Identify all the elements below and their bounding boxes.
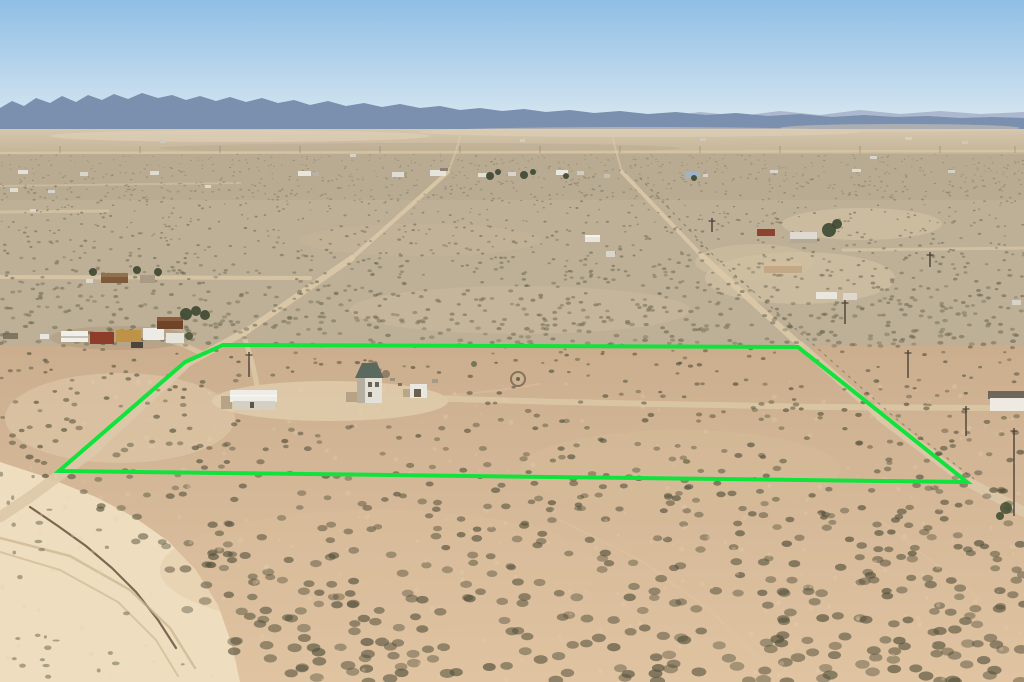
bush [473,526,482,531]
bush [981,180,984,182]
bush [882,247,886,249]
bush [77,213,80,215]
bush [151,292,156,295]
bush [422,212,425,214]
bush [557,162,559,163]
bush [516,163,518,164]
sand-speckle [827,604,831,608]
sand-speckle [1012,552,1015,555]
bush [663,271,667,274]
bush [178,170,180,171]
bush [984,634,997,642]
bush [642,338,648,342]
bush [138,200,140,202]
bush [747,442,755,447]
bush [430,165,432,166]
bush [221,177,224,179]
bush [606,170,608,171]
bush [882,161,884,162]
bush [696,281,700,283]
bush [776,274,781,277]
bush [271,199,274,201]
bush [471,223,474,225]
tree [200,310,210,320]
bush [32,180,34,181]
bush [823,171,825,172]
bush [716,205,719,207]
sand-speckle [502,397,506,401]
sand-patch [300,224,540,256]
bush [291,371,295,373]
bush [817,175,819,176]
bush [101,295,105,297]
bush [597,276,600,278]
bush [231,159,233,160]
sand-speckle [277,550,279,552]
far-house [870,156,877,159]
sand-speckle [446,518,448,520]
bush [512,182,515,184]
sand-speckle [294,431,299,436]
bush [273,166,275,167]
bush [303,580,314,587]
bush [59,172,61,173]
bush [822,258,825,260]
bush [538,177,540,178]
bush [397,160,399,161]
bush [126,475,133,479]
bush [665,188,667,189]
bush [614,334,620,338]
bush [948,625,961,633]
bush [1018,193,1021,195]
trailer-red [757,229,775,236]
bush [732,268,736,270]
bush [92,183,94,184]
bush [908,156,909,157]
bush [385,201,387,202]
sand-speckle [1004,625,1009,630]
bush [809,598,821,605]
bush [585,537,595,543]
bush [617,269,620,271]
bush [966,195,969,197]
bush [858,251,861,253]
bush [900,338,905,341]
far-house [392,172,404,177]
bush [902,616,913,623]
bush [257,190,259,191]
bush [23,325,28,328]
bush [673,180,676,182]
bush [436,194,438,195]
sand-speckle [618,617,621,620]
bush [246,162,248,163]
bush [169,293,174,296]
bush [23,186,26,188]
bush [385,252,388,254]
bush [228,551,237,557]
bush [551,282,556,285]
bush [293,351,298,354]
bush [967,323,972,326]
bush [468,375,474,378]
bush [775,221,778,223]
sand-speckle [502,385,504,387]
bush [688,364,693,367]
bush [561,669,574,677]
bush [10,291,15,294]
bush [165,566,176,573]
far-house [478,173,487,177]
bush [423,317,428,320]
bush [244,613,256,620]
bush [402,590,414,597]
sand-speckle [353,424,357,428]
sand-speckle [79,626,84,631]
bush [407,190,409,192]
bush [840,162,842,163]
bush [669,599,682,607]
bush [25,227,28,229]
bush [733,206,735,207]
bush [337,332,342,335]
bush [411,170,413,172]
bush [923,403,928,406]
bush [297,490,306,496]
bush [236,374,242,377]
sand-speckle [808,434,811,437]
bush [185,252,189,254]
bush [183,343,189,347]
bush [58,306,63,309]
bush [281,439,288,443]
bush [606,221,609,223]
bush [822,525,832,531]
bush [874,530,884,536]
bush [375,317,380,320]
bush [301,156,303,157]
far-house [577,171,584,175]
bush [883,297,887,300]
bush [327,181,329,182]
bush [751,406,756,409]
bush [376,176,378,177]
bush [998,306,1002,309]
bush [40,211,42,213]
bush [159,165,161,166]
bush [170,198,173,200]
bush [886,302,890,304]
bush [462,167,464,168]
bush [783,408,789,412]
bush [21,281,25,283]
bush [227,557,237,563]
bush [1009,197,1012,199]
bush [268,198,270,199]
bush [462,594,473,601]
bush [1014,161,1016,162]
bush [708,283,713,286]
bush [769,184,771,185]
bush [212,170,214,171]
wash-bush [13,551,17,555]
tree [495,169,501,175]
bush [135,185,137,186]
bush [172,207,175,209]
wash-bush [31,475,34,478]
bush [29,246,32,248]
bush [908,254,911,256]
bush [257,240,260,242]
sand-speckle [187,485,191,489]
bush [919,170,921,171]
bush [782,237,785,239]
bush [524,313,529,316]
bush [40,155,42,156]
bush [635,159,637,160]
bush [39,196,42,198]
bush [897,509,907,515]
bush [107,192,109,193]
sand-speckle [681,579,685,583]
bush [988,168,990,169]
bush [205,561,216,568]
bush [224,269,228,272]
bush [924,196,927,198]
bush [421,321,426,324]
bush [635,189,637,190]
bush [1002,186,1005,188]
bush [685,265,689,268]
bush [773,352,776,354]
sand-speckle [475,405,477,407]
bush [869,176,871,177]
bush [353,311,358,314]
bush [841,408,847,412]
bush [635,303,640,306]
bush [798,216,800,217]
bush [761,208,763,209]
bush [25,454,33,459]
bush [919,167,921,169]
bush [857,184,860,186]
bush [624,231,627,233]
bush [426,308,431,311]
bush [993,178,996,180]
bush [579,323,585,326]
bush [270,374,275,377]
far-car [30,209,36,212]
bush [927,316,932,319]
bush [393,492,401,497]
sand-speckle [547,541,551,545]
bush [660,172,662,173]
bush [500,183,502,184]
bush [426,482,434,487]
bush [601,351,604,353]
bush [80,223,83,225]
bush [175,225,177,226]
sand-speckle [929,642,934,647]
bush [533,204,535,206]
bush [807,182,810,184]
bush [654,222,656,223]
sand-speckle [443,414,448,419]
bush [829,185,831,186]
bush [745,159,747,160]
bush [19,257,23,260]
bush [485,402,491,406]
bush [906,575,916,581]
bush [464,429,471,433]
bush [772,286,776,289]
bush [899,272,904,275]
bush [568,164,570,165]
bush [353,184,355,185]
tree [471,361,477,367]
bush [826,154,827,155]
bush [475,327,480,330]
bush [578,191,581,193]
bush [809,179,811,180]
bush [902,181,904,182]
bush [1001,190,1003,191]
sand-speckle [552,509,556,513]
bush [981,300,986,303]
bush [324,495,332,500]
bush [307,168,309,169]
bush [893,637,906,645]
bush [658,172,660,173]
bush [918,437,924,441]
bush [516,190,518,191]
bush [809,314,814,317]
bush [715,324,720,327]
bush [630,188,632,190]
bush [244,227,248,229]
bush [452,173,454,174]
bush [834,184,836,185]
bush [167,270,171,272]
bush [910,209,913,211]
far-house [80,172,88,176]
bush [888,647,901,655]
bush [796,182,799,184]
bush [433,500,442,506]
bush [703,172,705,173]
bush [940,446,948,451]
bush [184,175,186,176]
bush [179,217,182,219]
sand-speckle [789,381,791,383]
bush [28,192,30,193]
bush [480,189,483,191]
bush [722,183,724,184]
bush [632,467,640,472]
bush [962,374,966,376]
bush [23,177,25,178]
sand-speckle [666,486,670,490]
bush [183,171,185,172]
bush [233,379,239,383]
bush [293,317,298,320]
bush [854,191,857,193]
bush [855,660,869,669]
sand-speckle [489,524,493,528]
bush [327,284,331,286]
bush [657,263,661,266]
bush [633,339,638,342]
bush [78,294,83,297]
bush [415,184,418,186]
bush [716,229,719,231]
bush [1008,269,1012,271]
bush [706,253,709,255]
bush [778,589,790,597]
bush [182,388,187,391]
bush [973,187,976,189]
bush [501,200,503,202]
bush [444,186,447,188]
bush [229,167,231,168]
bush [856,542,867,549]
bush [828,651,841,659]
bush [867,242,871,244]
bush [862,260,865,262]
bush [632,353,637,356]
bush [854,166,856,167]
bush [323,285,327,288]
bush [924,204,926,205]
bush [629,166,631,167]
bush [477,249,480,251]
bush [866,369,871,372]
bush [559,351,563,354]
bush [411,163,412,164]
fire-pit-center [516,377,520,381]
bush [411,366,416,369]
bush [934,183,937,185]
bush [511,181,513,182]
bush [382,166,384,167]
bush [219,183,222,185]
bush [69,387,73,390]
bush [690,184,692,185]
bush [884,173,886,174]
bush [825,487,832,492]
bush [564,274,567,276]
bush [100,200,103,202]
bush [196,244,199,246]
sand-speckle [567,654,569,656]
bush [666,205,669,207]
bush [584,155,586,156]
wash-bush [96,528,102,531]
sand-speckle [507,471,509,473]
bush [189,221,192,223]
bush [490,193,493,195]
bush [146,201,149,203]
bush [43,371,47,374]
bush [163,167,165,168]
bush [857,264,861,266]
bush [948,191,951,193]
bush [904,403,910,407]
bush [492,320,497,323]
bush [832,612,844,619]
bush [995,183,998,185]
